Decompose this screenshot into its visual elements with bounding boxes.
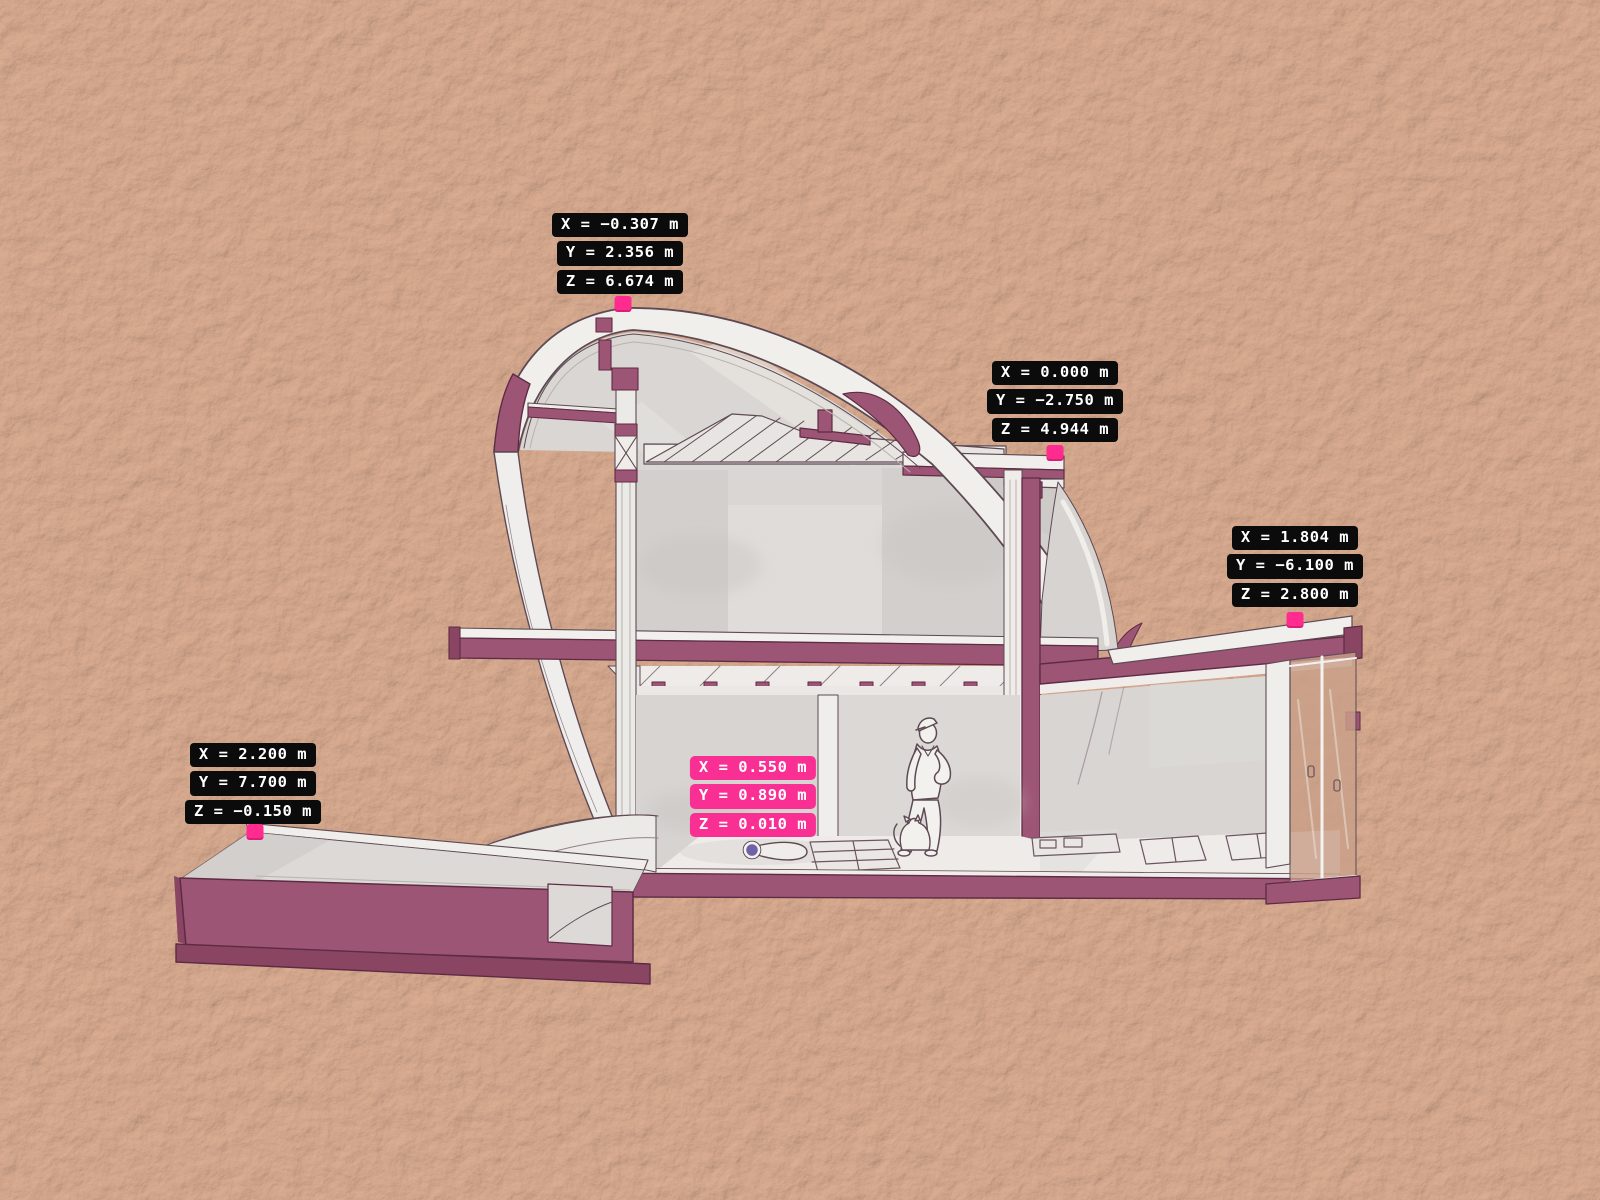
- coordinate-label-group-wing-roof-corner: X = 1.804 mY = −6.100 mZ = 2.800 m: [1227, 526, 1363, 607]
- coordinate-value-pill: Z = 0.010 m: [690, 813, 816, 837]
- coordinate-value-pill: X = −0.307 m: [552, 213, 688, 237]
- coordinate-value-pill: X = 1.804 m: [1232, 526, 1358, 550]
- coordinate-labels-layer: X = −0.307 mY = 2.356 mZ = 6.674 mX = 0.…: [0, 0, 1600, 1200]
- coordinate-label-group-pool-rim-corner: X = 2.200 mY = 7.700 mZ = −0.150 m: [185, 743, 321, 824]
- coordinate-value-pill: Y = −2.750 m: [987, 389, 1123, 413]
- coordinate-value-pill: X = 2.200 m: [190, 743, 316, 767]
- coordinate-value-pill: Z = 2.800 m: [1232, 583, 1358, 607]
- coordinate-value-pill: Z = 4.944 m: [992, 418, 1118, 442]
- coordinate-value-pill: X = 0.550 m: [690, 756, 816, 780]
- point-marker[interactable]: [1287, 612, 1304, 628]
- point-marker[interactable]: [1047, 445, 1064, 461]
- point-marker[interactable]: [615, 296, 632, 312]
- coordinate-value-pill: Y = 0.890 m: [690, 784, 816, 808]
- coordinate-value-pill: Z = −0.150 m: [185, 800, 321, 824]
- coordinate-value-pill: Y = 2.356 m: [557, 241, 683, 265]
- coordinate-label-group-upper-roof-edge: X = 0.000 mY = −2.750 mZ = 4.944 m: [987, 361, 1123, 442]
- coordinate-value-pill: Y = −6.100 m: [1227, 554, 1363, 578]
- point-marker[interactable]: [247, 824, 264, 840]
- coordinate-value-pill: Z = 6.674 m: [557, 270, 683, 294]
- coordinate-label-group-shell-apex: X = −0.307 mY = 2.356 mZ = 6.674 m: [552, 213, 688, 294]
- coordinate-value-pill: X = 0.000 m: [992, 361, 1118, 385]
- coordinate-value-pill: Y = 7.700 m: [190, 771, 316, 795]
- viewport-stage: X = −0.307 mY = 2.356 mZ = 6.674 mX = 0.…: [0, 0, 1600, 1200]
- coordinate-label-group-selected-floor-point: X = 0.550 mY = 0.890 mZ = 0.010 m: [690, 756, 816, 837]
